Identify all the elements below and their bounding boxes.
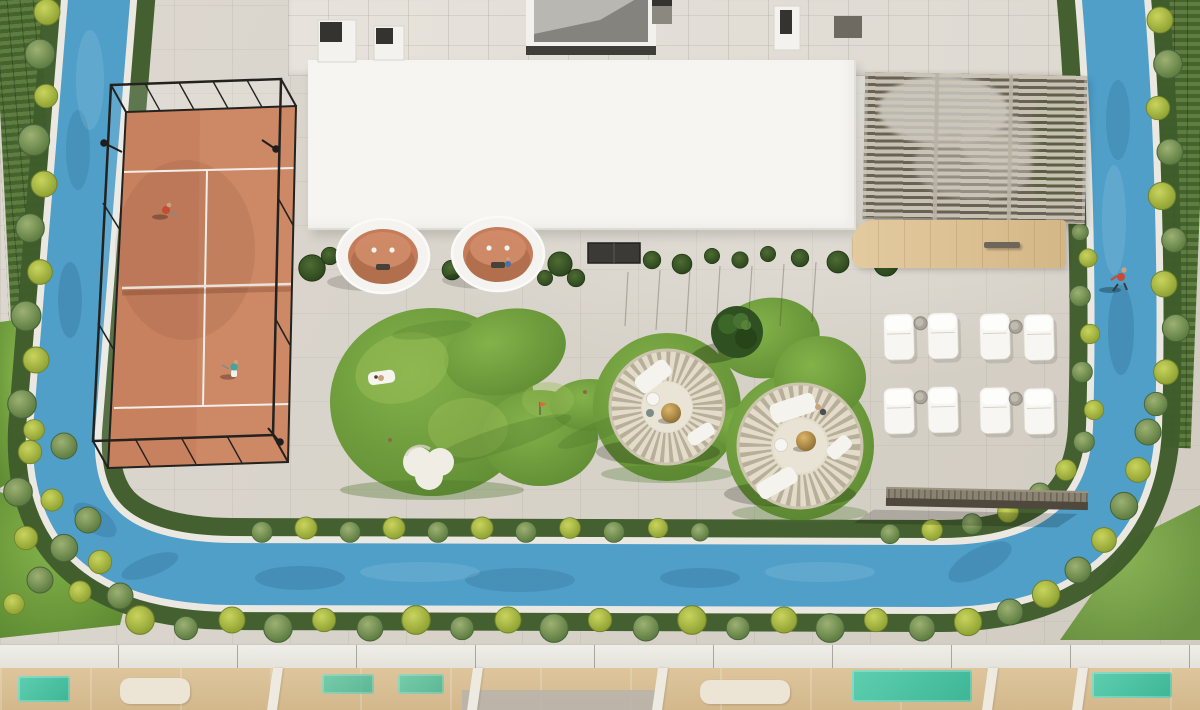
lounge-chair — [927, 312, 961, 363]
terrace-divider — [267, 668, 283, 710]
side-table — [1009, 392, 1022, 405]
cabana-guest — [815, 404, 821, 410]
fire-bowl — [796, 431, 816, 451]
pergola — [863, 72, 1088, 224]
rooftop-amenity-render — [0, 0, 1200, 710]
lounge-chairs — [883, 310, 1057, 443]
lounge-chair — [927, 386, 961, 437]
deck-bench — [984, 242, 1020, 248]
lower-level-terraces — [0, 668, 1200, 710]
lounge-chair — [883, 313, 917, 364]
cabana-pod-1 — [327, 219, 429, 293]
terrace-divider — [1072, 668, 1088, 710]
side-table — [914, 391, 927, 404]
fire-bowl — [661, 403, 681, 423]
skylight — [526, 0, 672, 55]
lounge-chair — [1023, 314, 1057, 365]
lounge-chair — [979, 387, 1013, 438]
teal-mat — [18, 676, 70, 702]
lounge-chair — [883, 387, 917, 438]
lounge-chair — [979, 313, 1013, 364]
lower-daybed — [700, 680, 790, 704]
outdoor-bench — [853, 486, 1088, 528]
teal-mat — [852, 670, 972, 702]
parapet-ledge — [0, 644, 1200, 670]
lounge-chair — [1023, 388, 1057, 439]
pod-guest — [505, 261, 511, 267]
teal-mat — [398, 674, 444, 694]
lower-daybed — [120, 678, 190, 704]
side-table — [1009, 320, 1022, 333]
padel-court — [93, 79, 296, 468]
pergola-slats — [863, 72, 1088, 224]
terrace-divider — [982, 668, 998, 710]
wood-deck — [852, 220, 1066, 268]
side-table — [914, 317, 927, 330]
teal-mat — [1092, 672, 1172, 698]
grey-floor-patch — [462, 690, 662, 710]
teal-mat — [322, 674, 374, 694]
terrace-divider — [652, 668, 668, 710]
cabana-pod-2 — [442, 217, 544, 291]
